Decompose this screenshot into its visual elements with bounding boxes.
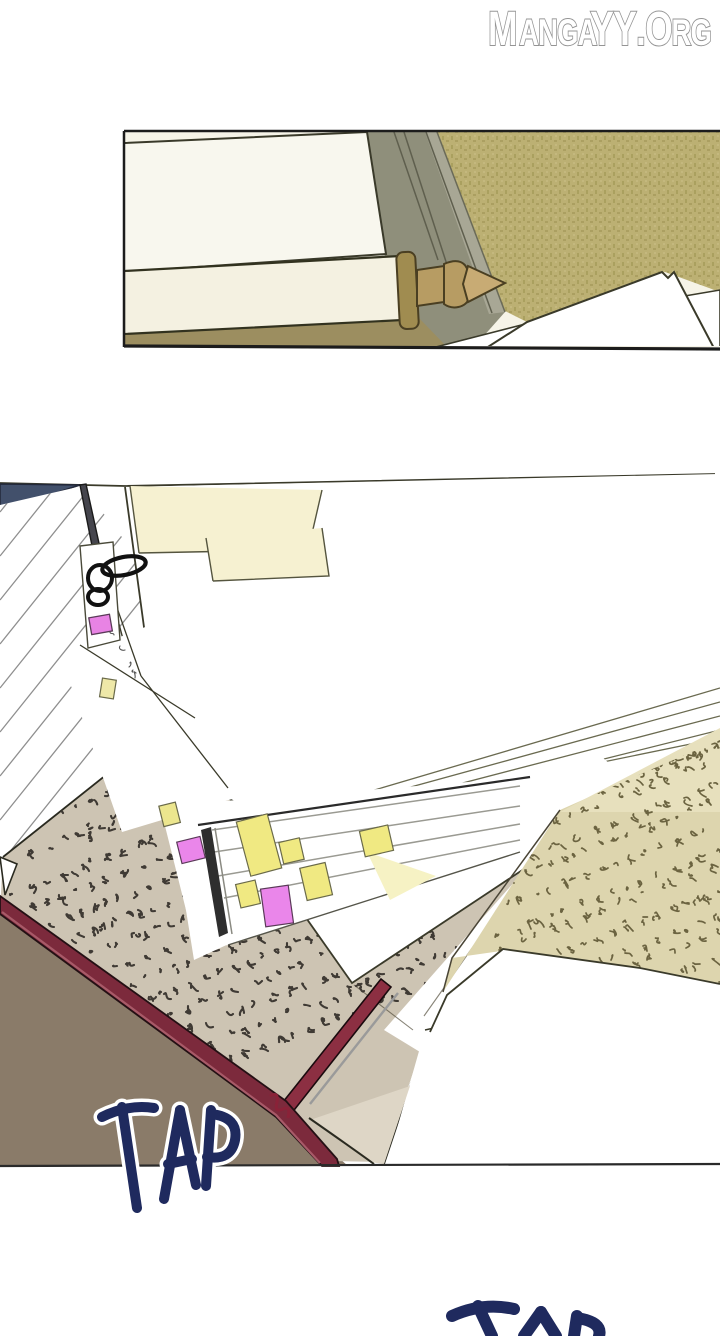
svg-text:YY: YY — [590, 2, 637, 55]
svg-text:.O: .O — [636, 2, 672, 55]
svg-text:M: M — [488, 2, 517, 55]
svg-text:RG: RG — [672, 12, 712, 53]
svg-text:ANGA: ANGA — [519, 12, 597, 53]
